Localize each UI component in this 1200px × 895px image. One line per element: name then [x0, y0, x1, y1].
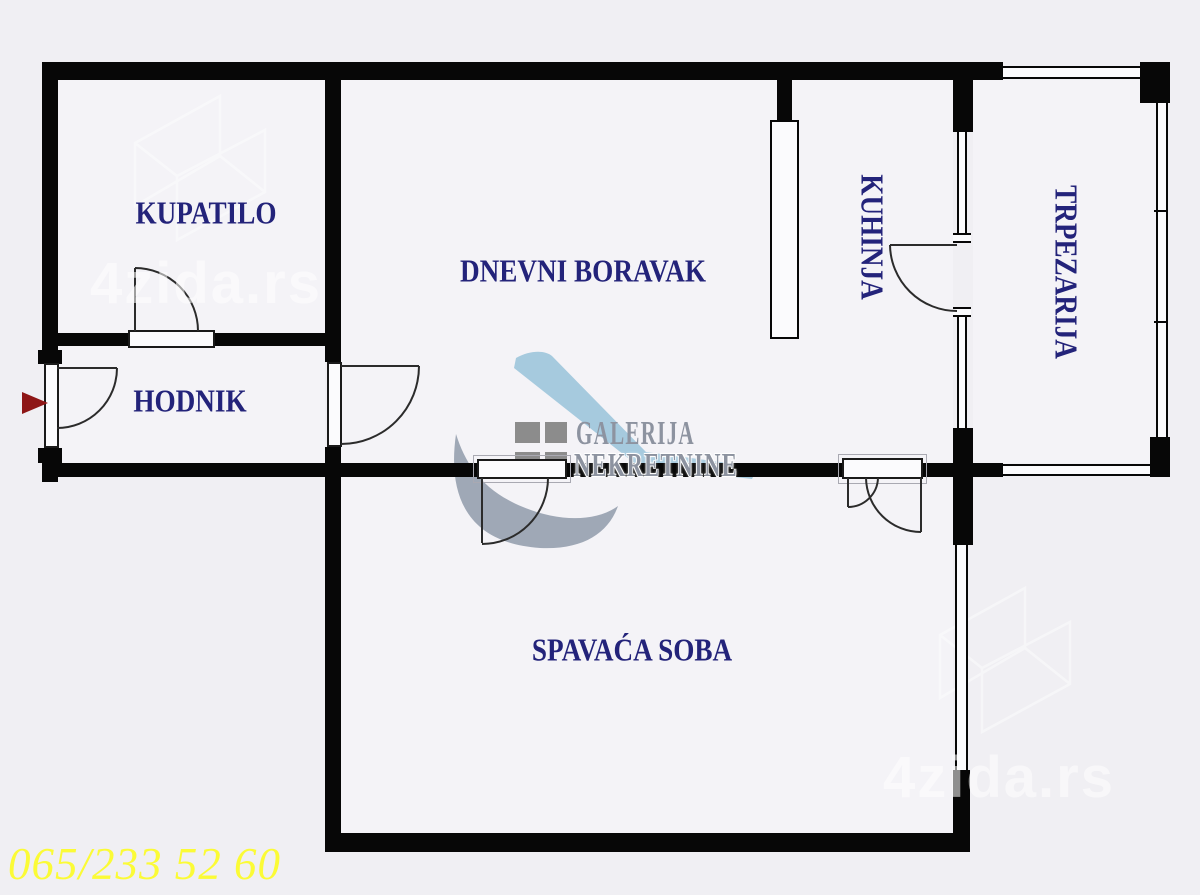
- label-bathroom: KUPATILO: [135, 195, 276, 232]
- label-hallway: HODNIK: [133, 383, 246, 420]
- agency-name-line2: NEKRETNINE: [574, 447, 738, 485]
- entry-arrow-icon: [22, 392, 48, 414]
- window-dining-right: [1156, 103, 1168, 437]
- kitchen-door-jamb-bottom: [953, 307, 971, 317]
- partition-kitchen-lower: [957, 317, 967, 428]
- window-bedroom-right: [955, 545, 968, 770]
- wall-corner-mid-right: [1150, 437, 1170, 477]
- window-dining-top: [1003, 66, 1140, 79]
- wall-top-outer: [42, 62, 1003, 80]
- phone-number: 065/233 52 60: [8, 838, 281, 890]
- wall-entry-jamb-top: [38, 350, 62, 364]
- watermark-site-bottom-right: 4zida.rs: [883, 744, 1115, 811]
- wall-main-horizontal-a: [42, 463, 477, 477]
- wall-cross-vertical: [953, 428, 973, 545]
- label-kitchen: KUHINJA: [854, 174, 891, 299]
- wall-corner-top-right: [1140, 62, 1170, 103]
- wall-left-upper: [42, 62, 58, 350]
- window-sill-mark: [1154, 210, 1168, 212]
- label-living-room: DNEVNI BORAVAK: [460, 253, 706, 290]
- wall-bathroom-bottom-b: [215, 333, 330, 346]
- bedroom-door2-frame: [842, 458, 923, 479]
- window-sill-mark: [1154, 321, 1168, 323]
- floor-plan: KUPATILO DNEVNI BORAVAK HODNIK SPAVAĆA S…: [0, 0, 1200, 895]
- label-bedroom: SPAVAĆA SOBA: [532, 632, 732, 669]
- watermark-site-top-left: 4zida.rs: [90, 250, 322, 317]
- wall-entry-jamb-bottom: [38, 448, 62, 463]
- bedroom-door1-frame: [477, 459, 567, 479]
- label-dining-room: TRPEZARIJA: [1048, 185, 1085, 359]
- wall-bedroom-bottom: [325, 833, 970, 852]
- partition-kitchen-upper: [957, 132, 967, 233]
- partition-living-kitchen: [770, 120, 799, 339]
- wall-bathroom-bottom-a: [42, 333, 128, 346]
- living-door-frame: [327, 362, 342, 447]
- bathroom-door-frame: [128, 330, 215, 348]
- window-dining-bottom: [1003, 464, 1150, 476]
- wall-partition-stub: [777, 80, 792, 122]
- wall-bathroom-right: [325, 80, 341, 362]
- kitchen-door-jamb-top: [953, 233, 971, 243]
- wall-bedroom-left: [325, 463, 341, 852]
- wall-kitchen-tee: [953, 62, 973, 132]
